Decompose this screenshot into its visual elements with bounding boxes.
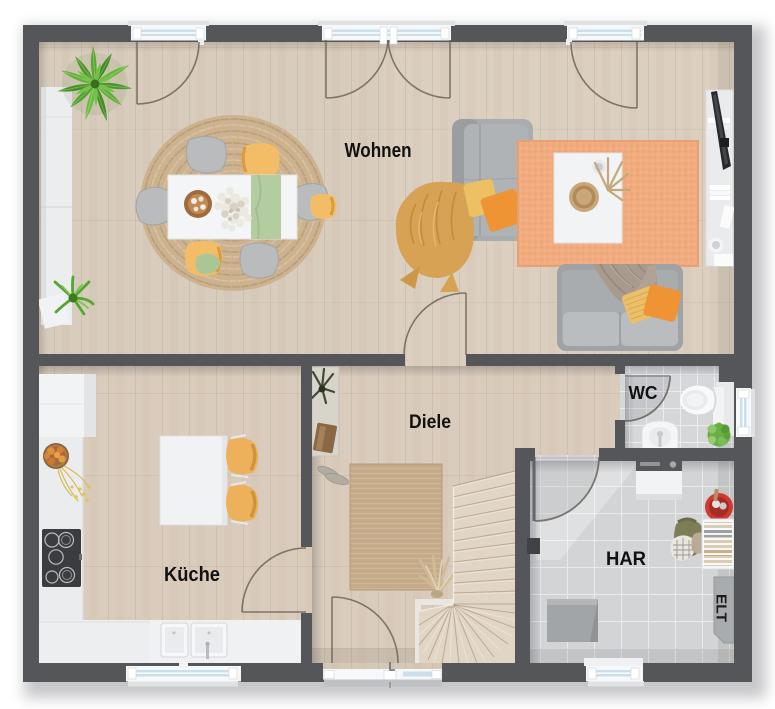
svg-text:Wohnen: Wohnen bbox=[345, 140, 412, 162]
svg-text:Küche: Küche bbox=[164, 564, 220, 586]
svg-text:ELT: ELT bbox=[713, 594, 729, 622]
svg-text:HAR: HAR bbox=[606, 548, 646, 570]
svg-text:WC: WC bbox=[629, 383, 658, 403]
svg-text:Diele: Diele bbox=[409, 412, 451, 433]
